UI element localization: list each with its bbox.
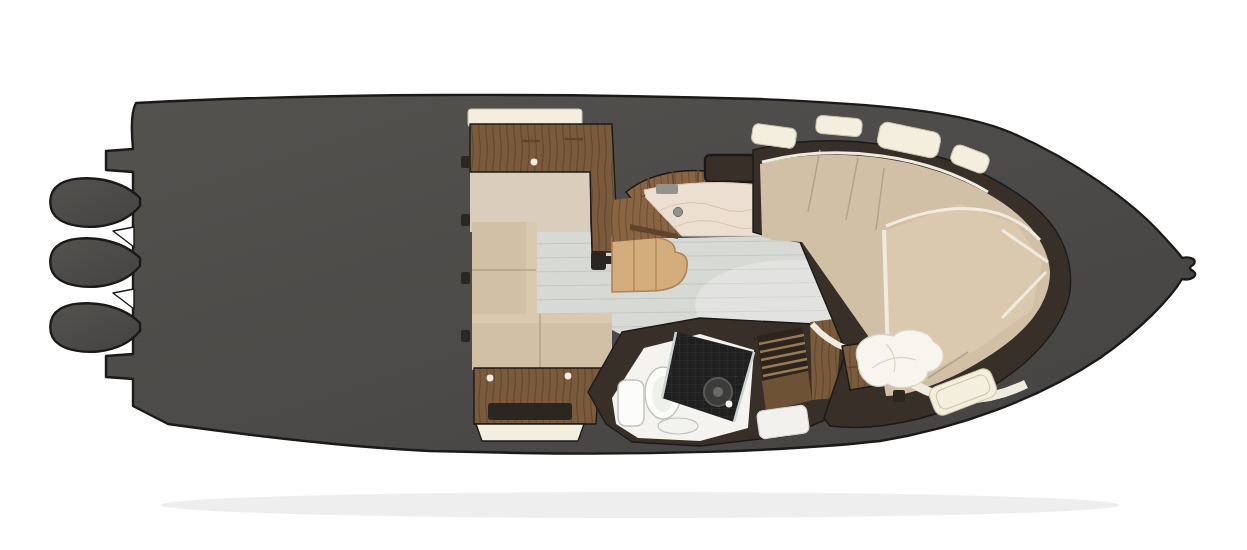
galley-knob-icon [487, 375, 494, 382]
engine-pod-icon [50, 238, 140, 287]
berth-latch-icon [893, 390, 905, 402]
deck-hatch [815, 115, 862, 137]
toilet-tank [618, 380, 644, 426]
outboard-engines [50, 178, 140, 352]
engine-pod-icon [50, 303, 140, 352]
settee-seat-edge [472, 314, 612, 323]
deck-hatch-frame [705, 155, 755, 182]
cabin-interior [461, 109, 1071, 446]
shower-drain-center [713, 387, 723, 397]
faucet-icon [656, 184, 678, 194]
head-sink [658, 418, 698, 434]
floor-plan-canvas [0, 0, 1247, 550]
sink-drain-icon [673, 207, 682, 216]
galley-knob-icon [565, 373, 572, 380]
engine-pod-icon [50, 178, 140, 227]
shower-drain-dot [726, 401, 733, 408]
galley-sink-slot [488, 403, 572, 420]
galley-base-trim [476, 424, 584, 441]
boat-floor-plan [0, 0, 1247, 550]
hull-shadow [160, 492, 1120, 518]
cabinet-knob-icon [531, 159, 538, 166]
transom-notch [113, 289, 134, 309]
